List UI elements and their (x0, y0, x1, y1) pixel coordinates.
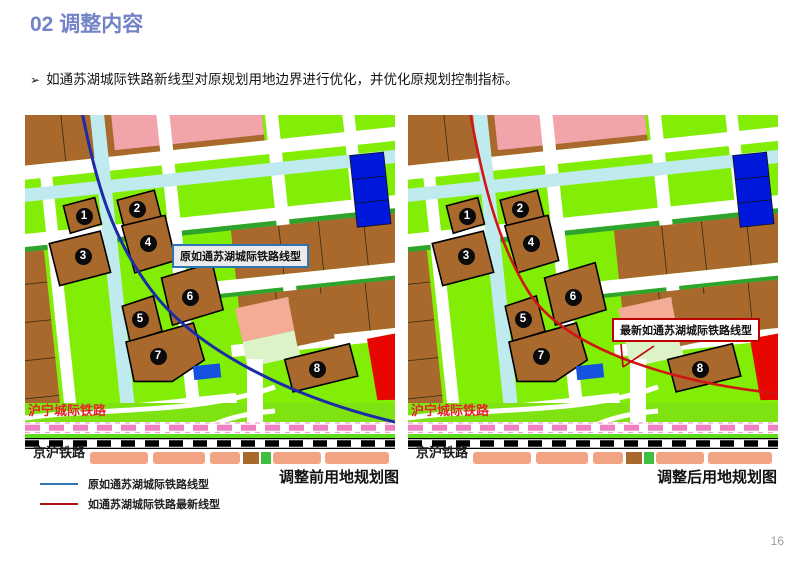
caption-before: 调整前用地规划图 (254, 466, 424, 487)
legend-item-old-line: 原如通苏湖城际铁路线型 (40, 474, 220, 494)
page-number: 16 (771, 534, 784, 548)
legend-red-line-swatch (40, 503, 78, 505)
parcel-badge: 5 (132, 311, 149, 328)
map-after-adjustment: 1 2 3 4 5 6 7 8 最新如通苏湖城际铁路线型 沪宁城际铁路 京沪铁路 (408, 115, 778, 465)
bullet-text: 如通苏湖城际铁路新线型对原规划用地边界进行优化，并优化原规划控制指标。 (46, 72, 519, 87)
railway-label-huning: 沪宁城际铁路 (28, 400, 106, 419)
parcel-badge: 1 (459, 208, 476, 225)
railway-label-huning: 沪宁城际铁路 (411, 400, 489, 419)
map-before-adjustment: 1 2 3 4 5 6 7 8 原如通苏湖城际铁路线型 沪宁城际铁路 京沪铁路 (25, 115, 395, 465)
parcel-badge: 2 (512, 201, 529, 218)
annotation-old-alignment: 原如通苏湖城际铁路线型 (172, 244, 309, 268)
parcel-badge: 8 (692, 361, 709, 378)
parcel-badge: 1 (76, 208, 93, 225)
annotation-new-alignment: 最新如通苏湖城际铁路线型 (612, 318, 760, 342)
railway-label-jinghu: 京沪铁路 (416, 442, 468, 461)
parcel-badge: 6 (182, 289, 199, 306)
legend-label: 如通苏湖城际铁路最新线型 (88, 496, 220, 512)
railway-label-jinghu: 京沪铁路 (33, 442, 85, 461)
parcel-badge: 4 (140, 235, 157, 252)
legend: 原如通苏湖城际铁路线型 如通苏湖城际铁路最新线型 (40, 474, 220, 514)
parcel-badge: 8 (309, 361, 326, 378)
caption-after: 调整后用地规划图 (632, 466, 800, 487)
page-title: 02 调整内容 (30, 8, 143, 38)
legend-label: 原如通苏湖城际铁路线型 (88, 476, 209, 492)
slide: 02 调整内容 ➢如通苏湖城际铁路新线型对原规划用地边界进行优化，并优化原规划控… (0, 0, 800, 566)
legend-item-new-line: 如通苏湖城际铁路最新线型 (40, 494, 220, 514)
parcel-badge: 3 (458, 248, 475, 265)
parcel-badge: 2 (129, 201, 146, 218)
legend-blue-line-swatch (40, 483, 78, 485)
parcel-badge: 6 (565, 289, 582, 306)
parcel-badge: 4 (523, 235, 540, 252)
parcel-badge: 7 (150, 348, 167, 365)
parcel-badge: 5 (515, 311, 532, 328)
parcel-badge: 7 (533, 348, 550, 365)
bullet-arrow-icon: ➢ (30, 73, 40, 87)
bullet-item: ➢如通苏湖城际铁路新线型对原规划用地边界进行优化，并优化原规划控制指标。 (30, 68, 770, 88)
parcel-badge: 3 (75, 248, 92, 265)
